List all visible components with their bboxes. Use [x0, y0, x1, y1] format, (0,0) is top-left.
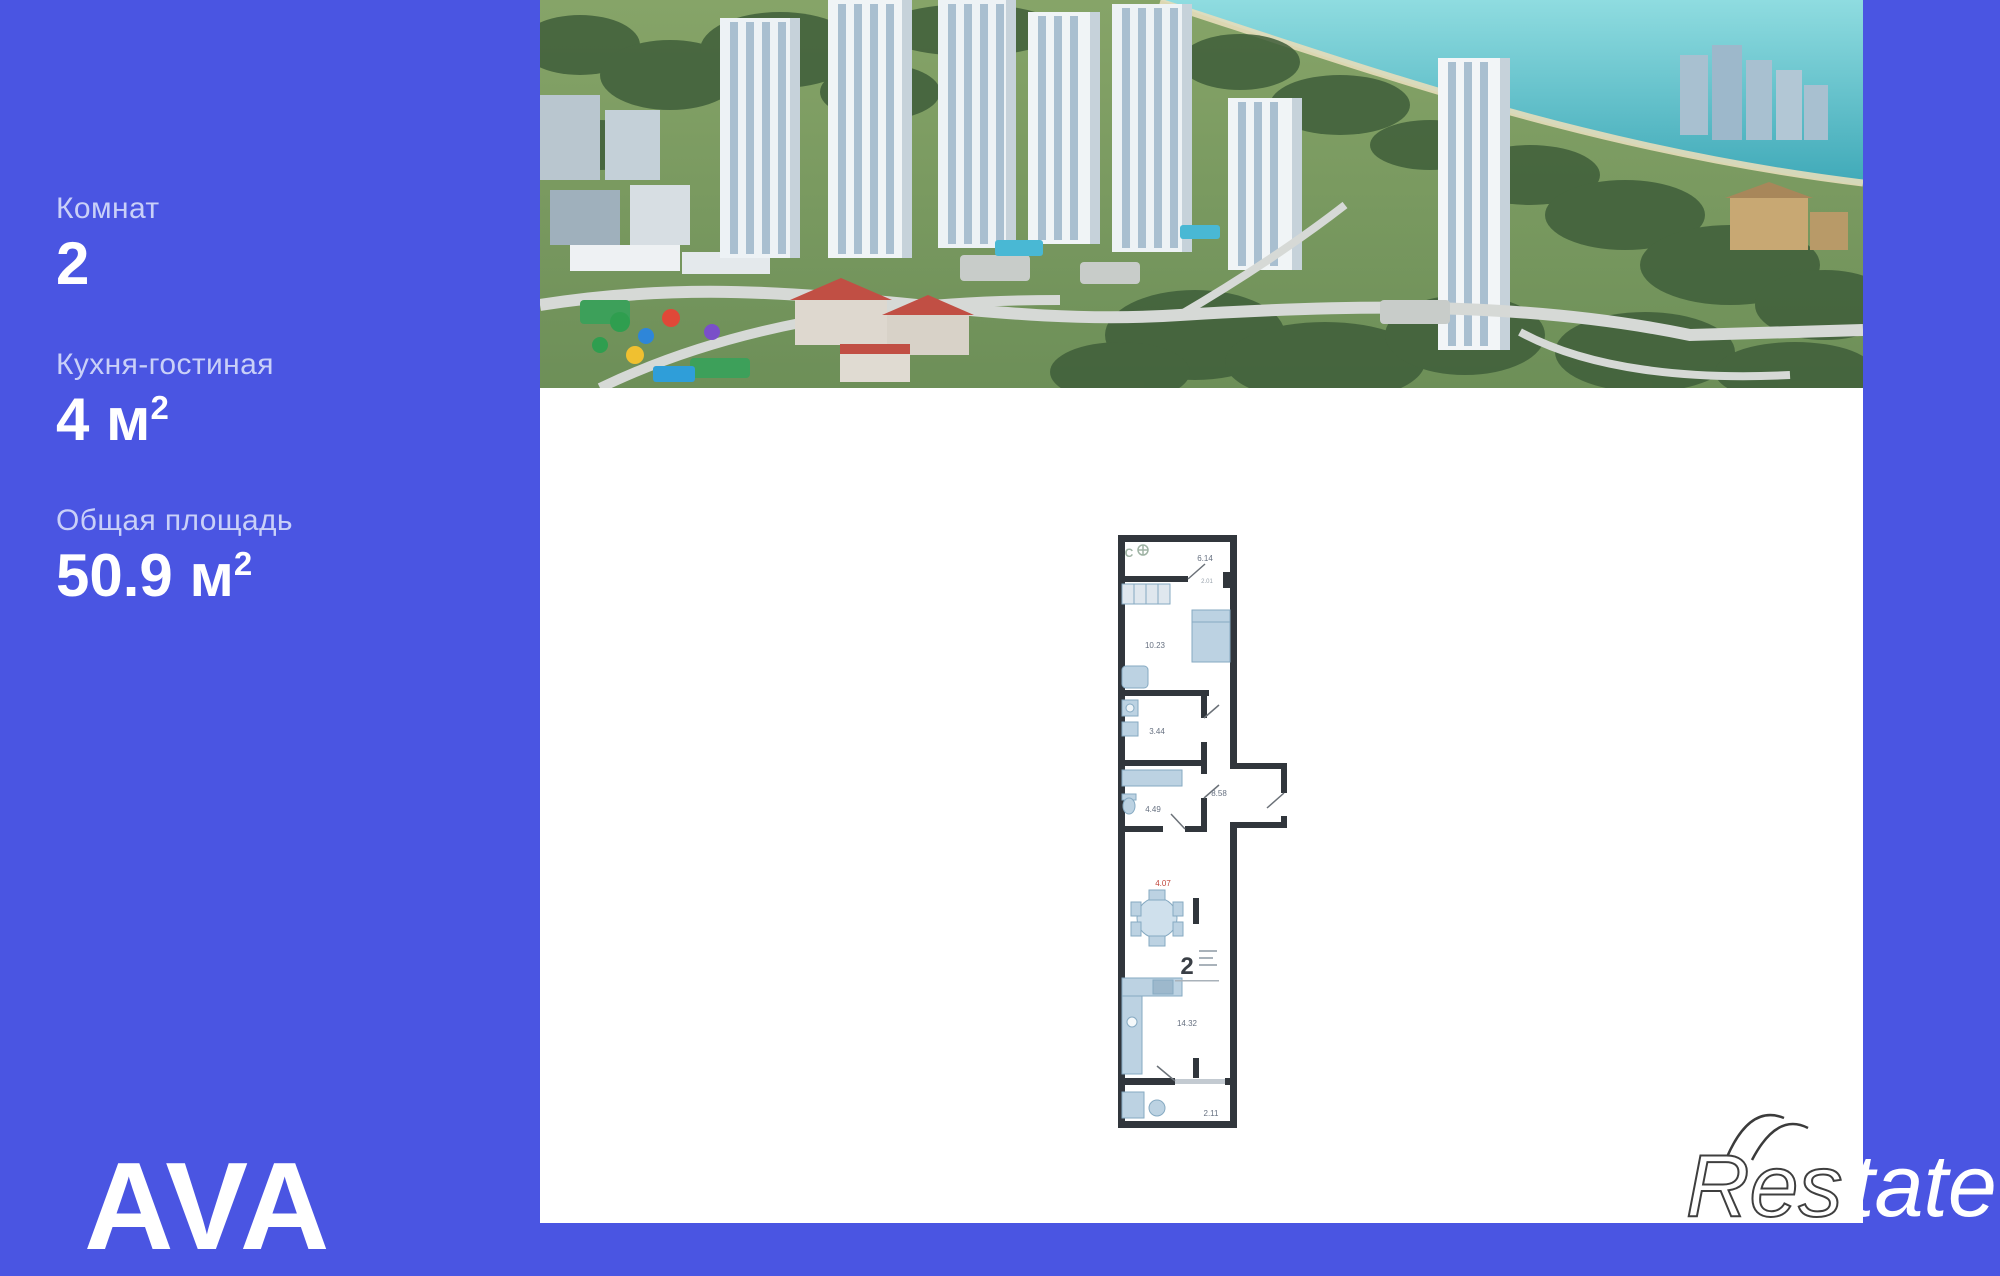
compass: С: [1125, 545, 1148, 560]
floor-plan: С 6.14 2.01 10.23 3.44 4.49 8.58 4.07 14…: [1113, 530, 1293, 1135]
room-label-corridor: 8.58: [1211, 789, 1227, 798]
room-label-bedroom: 10.23: [1145, 641, 1166, 650]
restate-watermark: Res tate: [1600, 1070, 2000, 1223]
room-label-hall-small: 2.01: [1201, 579, 1213, 585]
stat-kitchen-value: 4 м2: [56, 390, 274, 450]
complex-aerial-photo: [540, 0, 1863, 388]
plan-stamp: 2: [1175, 950, 1219, 982]
room-label-bathroom: 3.44: [1149, 727, 1165, 736]
stat-rooms: Комнат 2: [56, 192, 160, 294]
stat-kitchen: Кухня-гостиная 4 м2: [56, 348, 274, 450]
room-label-kitchen-niche: 4.07: [1155, 879, 1171, 888]
compass-north-label: С: [1125, 546, 1134, 560]
stat-rooms-value: 2: [56, 234, 160, 294]
stat-rooms-label: Комнат: [56, 192, 160, 226]
balcony-window: [1175, 1079, 1225, 1084]
stat-total-area: Общая площадь 50.9 м2: [56, 504, 293, 606]
furniture: [1122, 584, 1230, 1118]
stat-total-area-value: 50.9 м2: [56, 546, 293, 606]
watermark-solid-text: tate: [1850, 1136, 1997, 1223]
room-label-wc: 4.49: [1145, 805, 1161, 814]
room-label-hall: 6.14: [1197, 554, 1213, 563]
watermark-outline-text: Res: [1686, 1136, 1843, 1223]
room-label-balcony: 2.11: [1204, 1109, 1220, 1118]
plan-stamp-rooms-count: 2: [1180, 953, 1193, 980]
stat-kitchen-label: Кухня-гостиная: [56, 348, 274, 382]
listing-card: { "colors": { "background": "#4a55e2", "…: [0, 0, 2000, 1223]
room-label-living: 14.32: [1177, 1019, 1198, 1028]
ava-logo: AVA: [84, 1145, 330, 1269]
stat-total-area-label: Общая площадь: [56, 504, 293, 538]
